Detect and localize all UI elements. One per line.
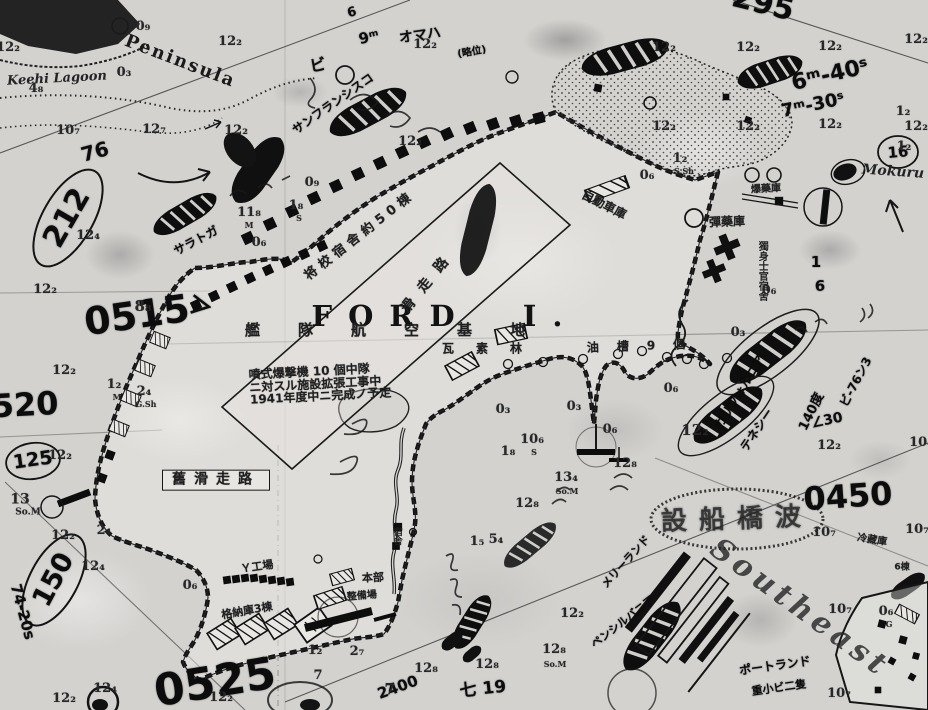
depth-sounding: 10₇ — [905, 523, 928, 537]
jp-label-hangars-3: 格納庫3棟 — [221, 601, 274, 621]
handwritten-ship-pennsylvania: ペンシルバニア — [589, 594, 657, 651]
bottom-type: S — [531, 448, 537, 456]
bottom-type: M — [245, 221, 254, 229]
handwritten-ship-portland: ポートランド — [738, 655, 811, 677]
depth-sounding: 12₂ — [904, 120, 928, 134]
handwritten-note-ships: 重小ビ二隻 — [751, 678, 807, 697]
depth-sounding: 0₆ — [640, 169, 655, 183]
bottom-type: S — [296, 214, 302, 222]
depth-sounding: 12₂ — [413, 38, 437, 52]
jp-label-gasoline: 瓦素林 — [442, 343, 544, 356]
handwritten-ship-saratoga: サラトガ — [172, 224, 220, 258]
depth-sounding: 0₆ — [664, 382, 679, 396]
handwritten-time-6m40s: 6ᵐ-40ˢ — [789, 55, 870, 95]
depth-sounding: 2₄ — [97, 524, 112, 538]
depth-sounding: 12₄ — [81, 560, 105, 574]
depth-sounding: 0₃ — [731, 326, 746, 340]
depth-sounding: 12₂ — [209, 691, 233, 705]
bottom-type: So.M — [15, 508, 40, 517]
depth-sounding: 10₄ — [909, 436, 928, 450]
depth-sounding: 12₂ — [398, 135, 422, 149]
handwritten-number-1: 1 — [811, 255, 821, 271]
depth-sounding: 10₇ — [828, 603, 852, 617]
depth-sounding: 12₂ — [904, 33, 928, 47]
jp-label-headquarters: 本部 — [362, 572, 385, 585]
handwritten-number-2400: 2400 — [376, 673, 421, 702]
depth-sounding: 12₈ — [475, 658, 499, 672]
bottom-type: So.M — [544, 660, 567, 668]
depth-sounding: 12₈ — [515, 497, 539, 511]
depth-sounding: 1₂ — [897, 140, 912, 154]
depth-sounding: 0₃ — [496, 403, 511, 417]
depth-sounding: 0₃ — [567, 400, 582, 414]
place-name-mokuru: Mokuru — [861, 163, 924, 182]
depth-sounding: 12₂ — [817, 439, 841, 453]
depth-sounding: 12₂ — [681, 423, 708, 439]
place-name-keehi-lagoon: Keehi Lagoon — [7, 70, 107, 89]
depth-sounding: 7 — [313, 669, 322, 683]
label-layer: FORD I.Keehi LagoonPeninsulaMokuruSouthe… — [0, 0, 928, 710]
depth-sounding: 1₅ — [470, 535, 485, 549]
handwritten-ship-maryland: メリーランド — [600, 534, 653, 591]
depth-sounding: 13₄ — [554, 471, 578, 485]
jp-label-6-buildings: 6棟 — [894, 563, 909, 572]
depth-sounding: 12₂ — [818, 40, 842, 54]
bottom-type: G.Sh — [136, 400, 157, 408]
depth-sounding: 12₂ — [52, 364, 76, 378]
handwritten-time-9m: 9ᵐ — [357, 28, 380, 48]
handwritten-note-ryakui: (略位) — [457, 45, 488, 60]
jp-label-oil-tanks: 油槽9個 — [587, 338, 704, 355]
depth-sounding: 12₂ — [224, 124, 248, 138]
depth-sounding: 8₈ — [134, 299, 151, 315]
handwritten-ship-san-francisco: サンフランシスコ — [290, 71, 376, 136]
depth-sounding: 2₄ — [137, 385, 152, 399]
depth-sounding: 12₂ — [218, 35, 242, 49]
depth-sounding: 10₇ — [56, 124, 80, 138]
depth-sounding: 1₈ — [501, 445, 516, 459]
depth-sounding: 2₇ — [350, 645, 365, 659]
depth-sounding: 10₇ — [827, 687, 851, 701]
jp-label-officers-quarters: 将校宿舎約50棟 — [302, 189, 418, 284]
depth-sounding: 12₂ — [652, 41, 676, 55]
handwritten-arrow-mark: ＞ — [187, 293, 215, 322]
depth-sounding: 12₂ — [33, 283, 57, 297]
depth-sounding: 12₄ — [93, 682, 117, 696]
depth-sounding: 0₆ — [879, 605, 894, 619]
depth-sounding: 11₈ — [237, 206, 261, 220]
jp-label-factory: Ｙ工場 — [240, 559, 274, 575]
depth-sounding: 1₂ — [308, 644, 323, 658]
jp-label-maintenance: 整備場 — [347, 590, 378, 603]
jp-label-quarters: 宿舎 — [391, 527, 400, 545]
handwritten-number-6: 6 — [815, 279, 825, 295]
handwritten-note-bi: ビ — [309, 56, 328, 75]
depth-sounding: 12₄ — [76, 229, 100, 243]
depth-sounding: 0₆ — [252, 236, 267, 250]
handwritten-note-hi19: 七 19 — [459, 679, 507, 702]
depth-sounding: 13 — [10, 493, 29, 508]
jp-label-cold-storage: 冷藏庫 — [856, 533, 887, 548]
jp-stamp-oval: 設船橋波 — [661, 504, 814, 537]
jp-label-old-runway: 舊滑走路 — [162, 470, 270, 491]
depth-sounding: 5₄ — [489, 533, 504, 547]
depth-sounding: 0₉ — [305, 176, 320, 190]
depth-sounding: 0₆ — [183, 579, 198, 593]
bottom-type: G — [886, 620, 893, 628]
bottom-type: S.Sh — [674, 167, 694, 175]
depth-sounding: 12₂ — [48, 449, 72, 463]
depth-sounding: 12₂ — [736, 120, 760, 134]
depth-sounding: 10₇ — [812, 526, 836, 540]
depth-sounding: 0₃ — [117, 66, 132, 80]
handwritten-number-6b: 6 — [346, 5, 358, 21]
captured-pearl-harbor-chart: FORD I.Keehi LagoonPeninsulaMokuruSouthe… — [0, 0, 928, 710]
depth-sounding: 1₂ — [673, 152, 688, 166]
jp-label-auto-garage: 自動車庫 — [580, 188, 628, 221]
jp-annotation-expansion: 噴式爆撃機 10 個中隊 ニ対スル施設拡張工事中 1941年度中ニ完成ノ予定 — [248, 361, 391, 406]
depth-sounding: 10₆ — [520, 433, 544, 447]
handwritten-time-0450: 0450 — [802, 477, 893, 517]
depth-sounding: 12₂ — [652, 120, 676, 134]
depth-sounding: 12₂ — [560, 607, 584, 621]
depth-sounding: 1₂ — [107, 378, 122, 392]
depth-sounding: 0₆ — [762, 284, 777, 298]
depth-sounding: 0₆ — [603, 423, 618, 437]
depth-sounding: 12₂ — [818, 118, 842, 132]
depth-sounding: 0₉ — [136, 20, 151, 34]
depth-sounding: 7 — [384, 682, 395, 699]
handwritten-number-150: 150 — [28, 548, 79, 611]
handwritten-ship-tennessee: テネシー — [738, 407, 775, 454]
depth-sounding: 1₈ — [289, 199, 304, 213]
jp-label-fleet-air-base: 艦隊航空基地 — [245, 323, 563, 339]
depth-sounding: 12₂ — [736, 41, 760, 55]
depth-sounding: 12₈ — [414, 662, 438, 676]
depth-sounding: 4₈ — [29, 82, 44, 96]
depth-sounding: 12₂ — [52, 692, 76, 706]
depth-sounding: 12₈ — [613, 457, 637, 471]
depth-sounding: 12₈ — [542, 643, 566, 657]
handwritten-note-bi76: ビ-76ン3 — [838, 355, 874, 409]
depth-sounding: 12₇ — [142, 123, 166, 137]
jp-label-ammo-depot: 彈藥庫 — [709, 215, 745, 229]
bottom-type: So.M — [556, 487, 579, 495]
depth-sounding: 1₂ — [896, 105, 911, 119]
depth-sounding: 12₂ — [0, 41, 20, 55]
handwritten-number-76: 76 — [79, 138, 111, 165]
bottom-type: M — [113, 393, 122, 401]
jp-label-bomb-magazine: 爆藥庫 — [751, 184, 782, 196]
handwritten-number-295: 295 — [729, 0, 797, 27]
depth-sounding: 12₂ — [51, 529, 75, 543]
handwritten-time-0520: 0520 — [0, 387, 59, 425]
